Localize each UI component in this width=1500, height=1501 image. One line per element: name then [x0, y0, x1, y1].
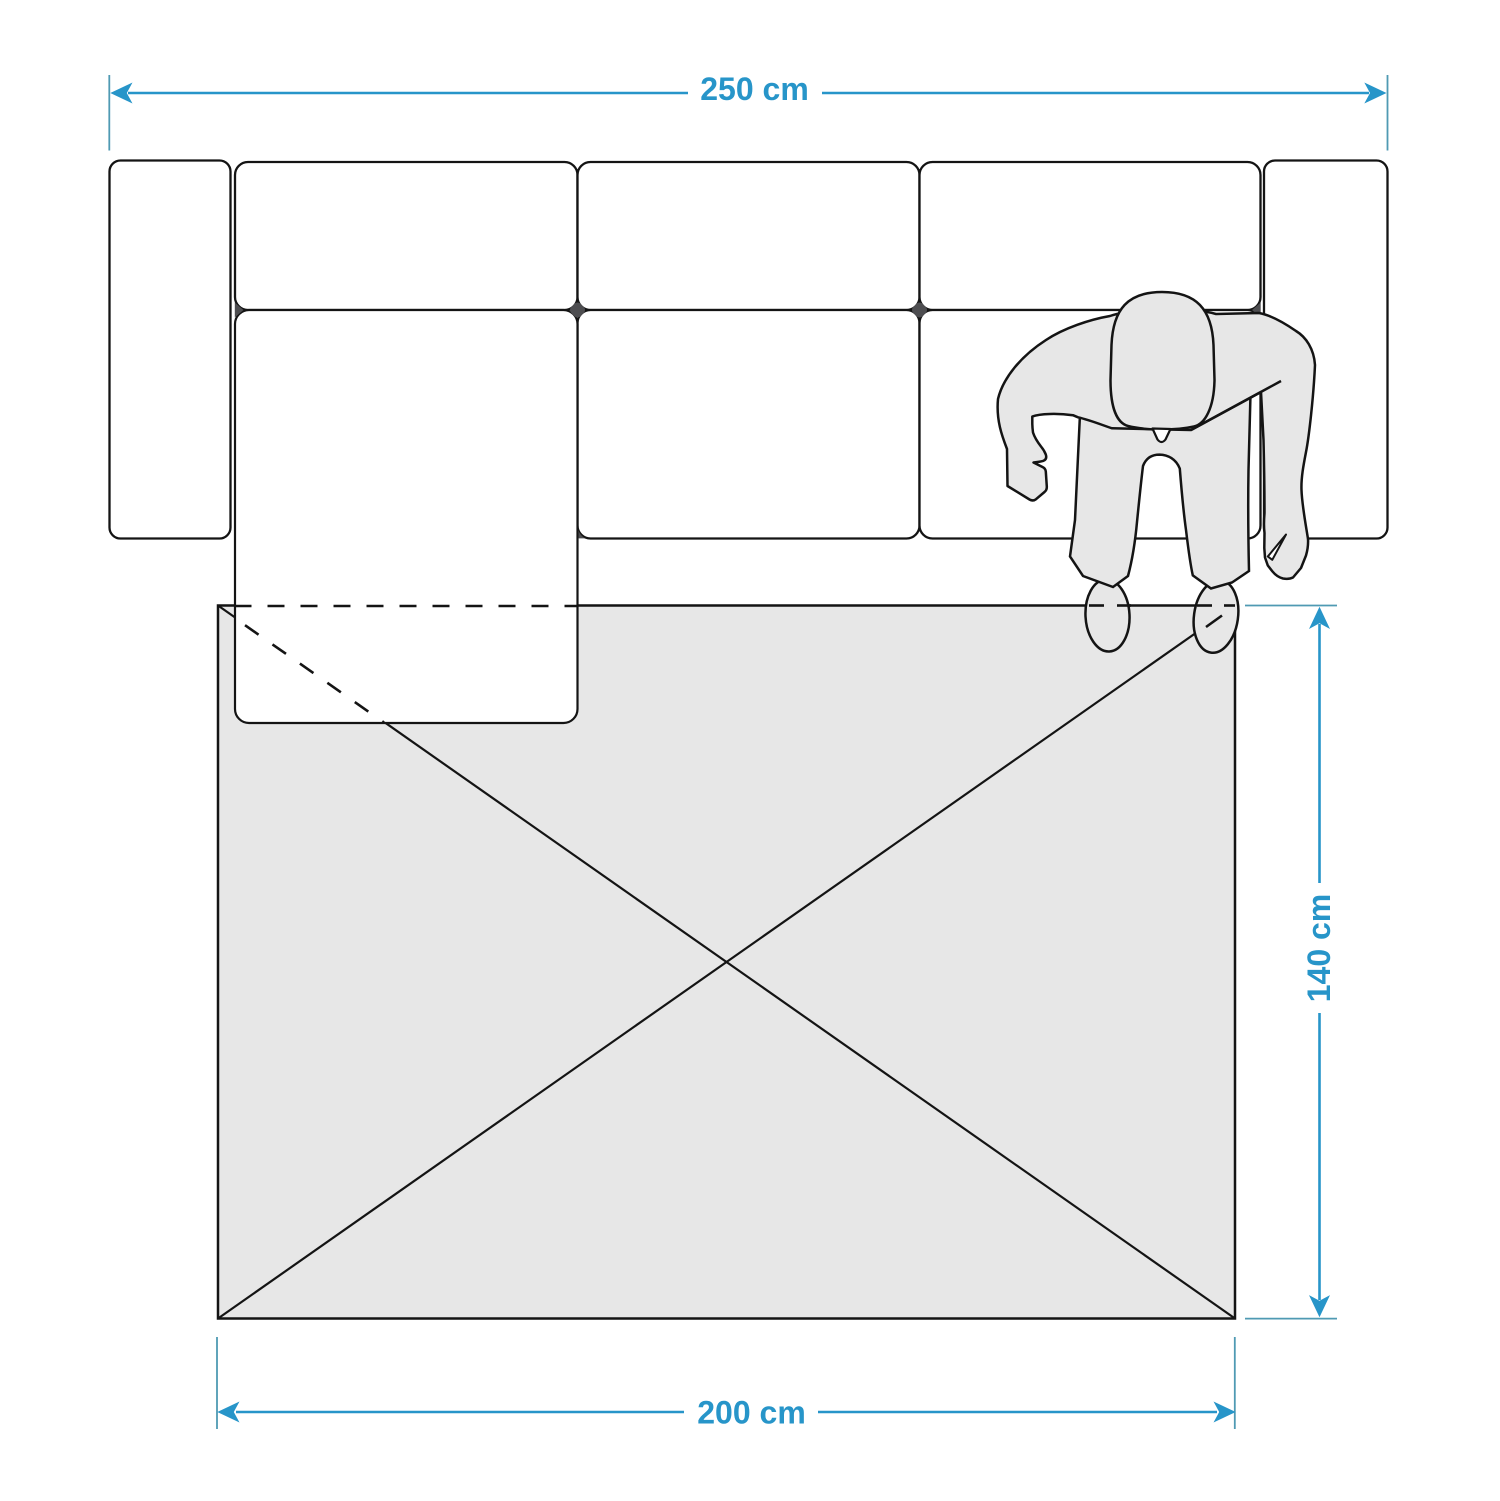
svg-text:140 cm: 140 cm [1301, 894, 1337, 1003]
svg-text:200 cm: 200 cm [697, 1395, 806, 1431]
svg-text:250 cm: 250 cm [700, 71, 809, 107]
